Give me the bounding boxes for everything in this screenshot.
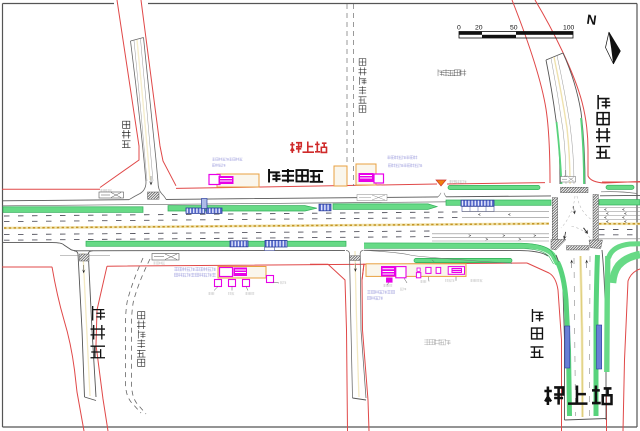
svg-text:0: 0 <box>457 25 461 32</box>
svg-text:N: N <box>586 12 598 28</box>
svg-text:50: 50 <box>510 25 518 32</box>
svg-text:20: 20 <box>475 25 483 32</box>
svg-text:100: 100 <box>563 25 575 32</box>
